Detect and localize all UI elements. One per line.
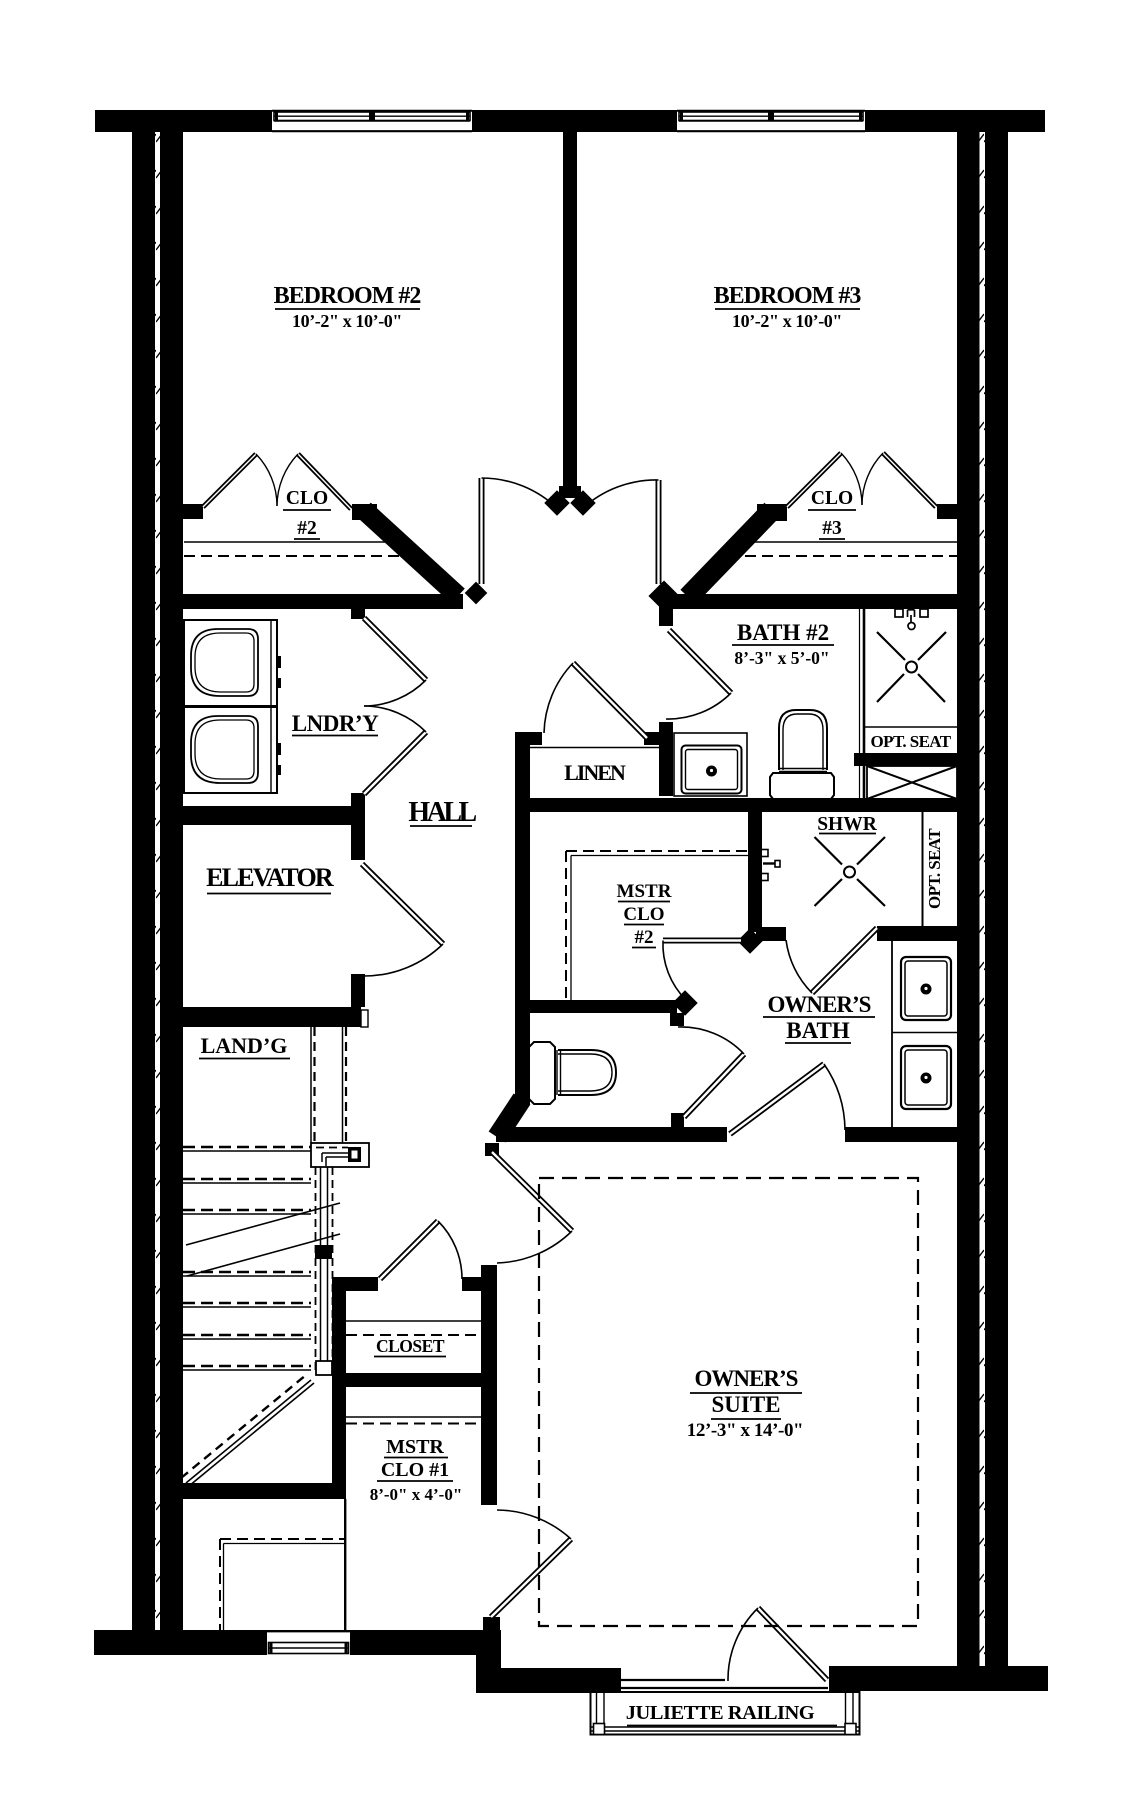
svg-text:#2: #2: [297, 518, 317, 539]
svg-text:OWNER’S: OWNER’S: [695, 1366, 798, 1391]
svg-text:10’-2" x 10’-0": 10’-2" x 10’-0": [292, 311, 402, 331]
svg-text:JULIETTE RAILING: JULIETTE RAILING: [626, 1702, 815, 1724]
svg-text:8’-3" x 5’-0": 8’-3" x 5’-0": [734, 648, 829, 668]
svg-text:CLO: CLO: [286, 488, 328, 509]
svg-text:CLO: CLO: [623, 904, 664, 925]
svg-text:10’-2" x 10’-0": 10’-2" x 10’-0": [732, 311, 842, 331]
svg-text:CLO #1: CLO #1: [381, 1459, 449, 1481]
svg-text:#2: #2: [635, 927, 654, 948]
svg-text:CLO: CLO: [811, 488, 853, 509]
svg-text:BATH: BATH: [786, 1018, 850, 1043]
svg-text:OPT. SEAT: OPT. SEAT: [871, 732, 952, 751]
svg-text:12’-3" x 14’-0": 12’-3" x 14’-0": [687, 1420, 803, 1441]
svg-text:CLOSET: CLOSET: [376, 1336, 445, 1356]
svg-text:BEDROOM #2: BEDROOM #2: [274, 283, 421, 309]
svg-text:8’-0" x 4’-0": 8’-0" x 4’-0": [370, 1485, 463, 1504]
svg-text:LINEN: LINEN: [564, 760, 626, 785]
svg-text:HALL: HALL: [408, 797, 476, 828]
svg-text:LAND’G: LAND’G: [201, 1033, 288, 1058]
svg-text:OWNER’S: OWNER’S: [768, 992, 871, 1017]
svg-text:MSTR: MSTR: [386, 1436, 444, 1458]
svg-text:BATH #2: BATH #2: [737, 620, 829, 645]
svg-text:#3: #3: [822, 518, 842, 539]
svg-text:ELEVATOR: ELEVATOR: [206, 863, 334, 892]
svg-text:LNDR’Y: LNDR’Y: [292, 711, 379, 736]
svg-text:OPT. SEAT: OPT. SEAT: [925, 828, 944, 909]
svg-text:BEDROOM #3: BEDROOM #3: [714, 283, 862, 309]
svg-text:SUITE: SUITE: [711, 1392, 780, 1417]
svg-text:SHWR: SHWR: [817, 814, 878, 835]
svg-text:MSTR: MSTR: [617, 881, 672, 902]
